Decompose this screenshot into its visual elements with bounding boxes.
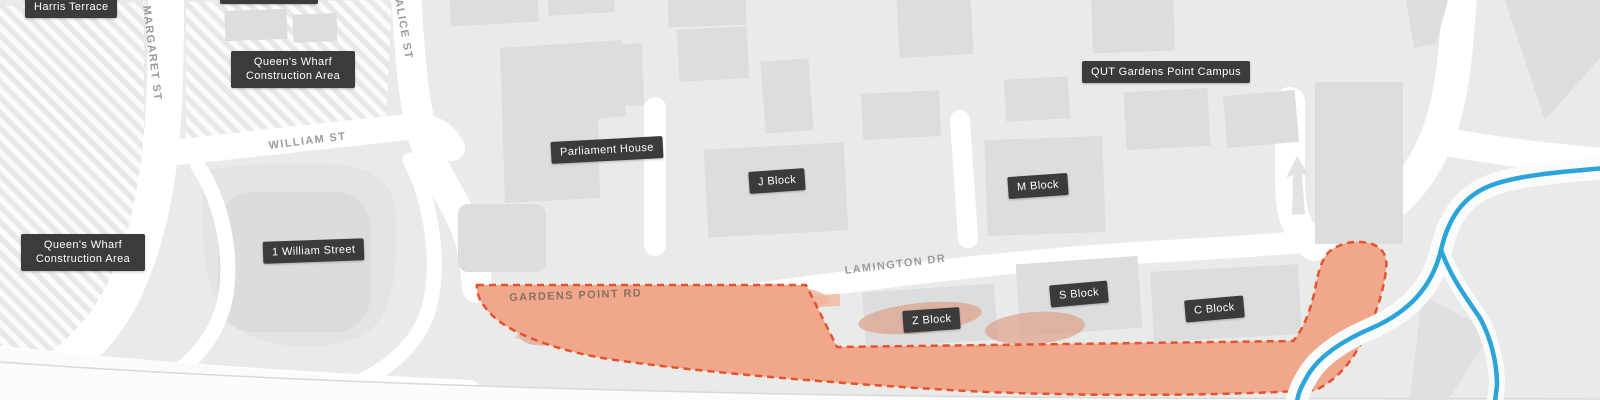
- label-line: Construction Area: [246, 70, 340, 82]
- building: [861, 90, 941, 140]
- building: [1124, 88, 1211, 150]
- campus-closure-map: Harris Terrace Queen's Wharf Constructio…: [0, 0, 1600, 400]
- label-m-block: M Block: [1007, 173, 1068, 199]
- building: [761, 58, 814, 133]
- building: [449, 0, 539, 26]
- building: [896, 0, 973, 58]
- building: [1315, 82, 1403, 244]
- label-cut-off: [220, 0, 318, 4]
- label-queens-wharf-north: Queen's Wharf Construction Area: [231, 51, 355, 88]
- building: [458, 204, 546, 272]
- label-line: Construction Area: [36, 253, 130, 265]
- label-harris-terrace: Harris Terrace: [25, 0, 117, 18]
- label-z-block: Z Block: [902, 307, 961, 333]
- label-line: Queen's Wharf: [254, 56, 332, 68]
- label-line: Queen's Wharf: [44, 239, 122, 251]
- label-qut-gardens-point-campus: QUT Gardens Point Campus: [1082, 61, 1250, 83]
- building: [1223, 90, 1299, 148]
- building: [1091, 0, 1175, 53]
- building: [293, 13, 338, 43]
- campus-road: [960, 120, 968, 238]
- building: [224, 9, 287, 41]
- building: [667, 0, 746, 27]
- label-j-block: J Block: [748, 168, 806, 194]
- building: [1004, 76, 1070, 121]
- building: [677, 26, 750, 82]
- label-one-william-street: 1 William Street: [263, 238, 365, 264]
- label-queens-wharf-west: Queen's Wharf Construction Area: [21, 234, 145, 271]
- building: [592, 43, 644, 107]
